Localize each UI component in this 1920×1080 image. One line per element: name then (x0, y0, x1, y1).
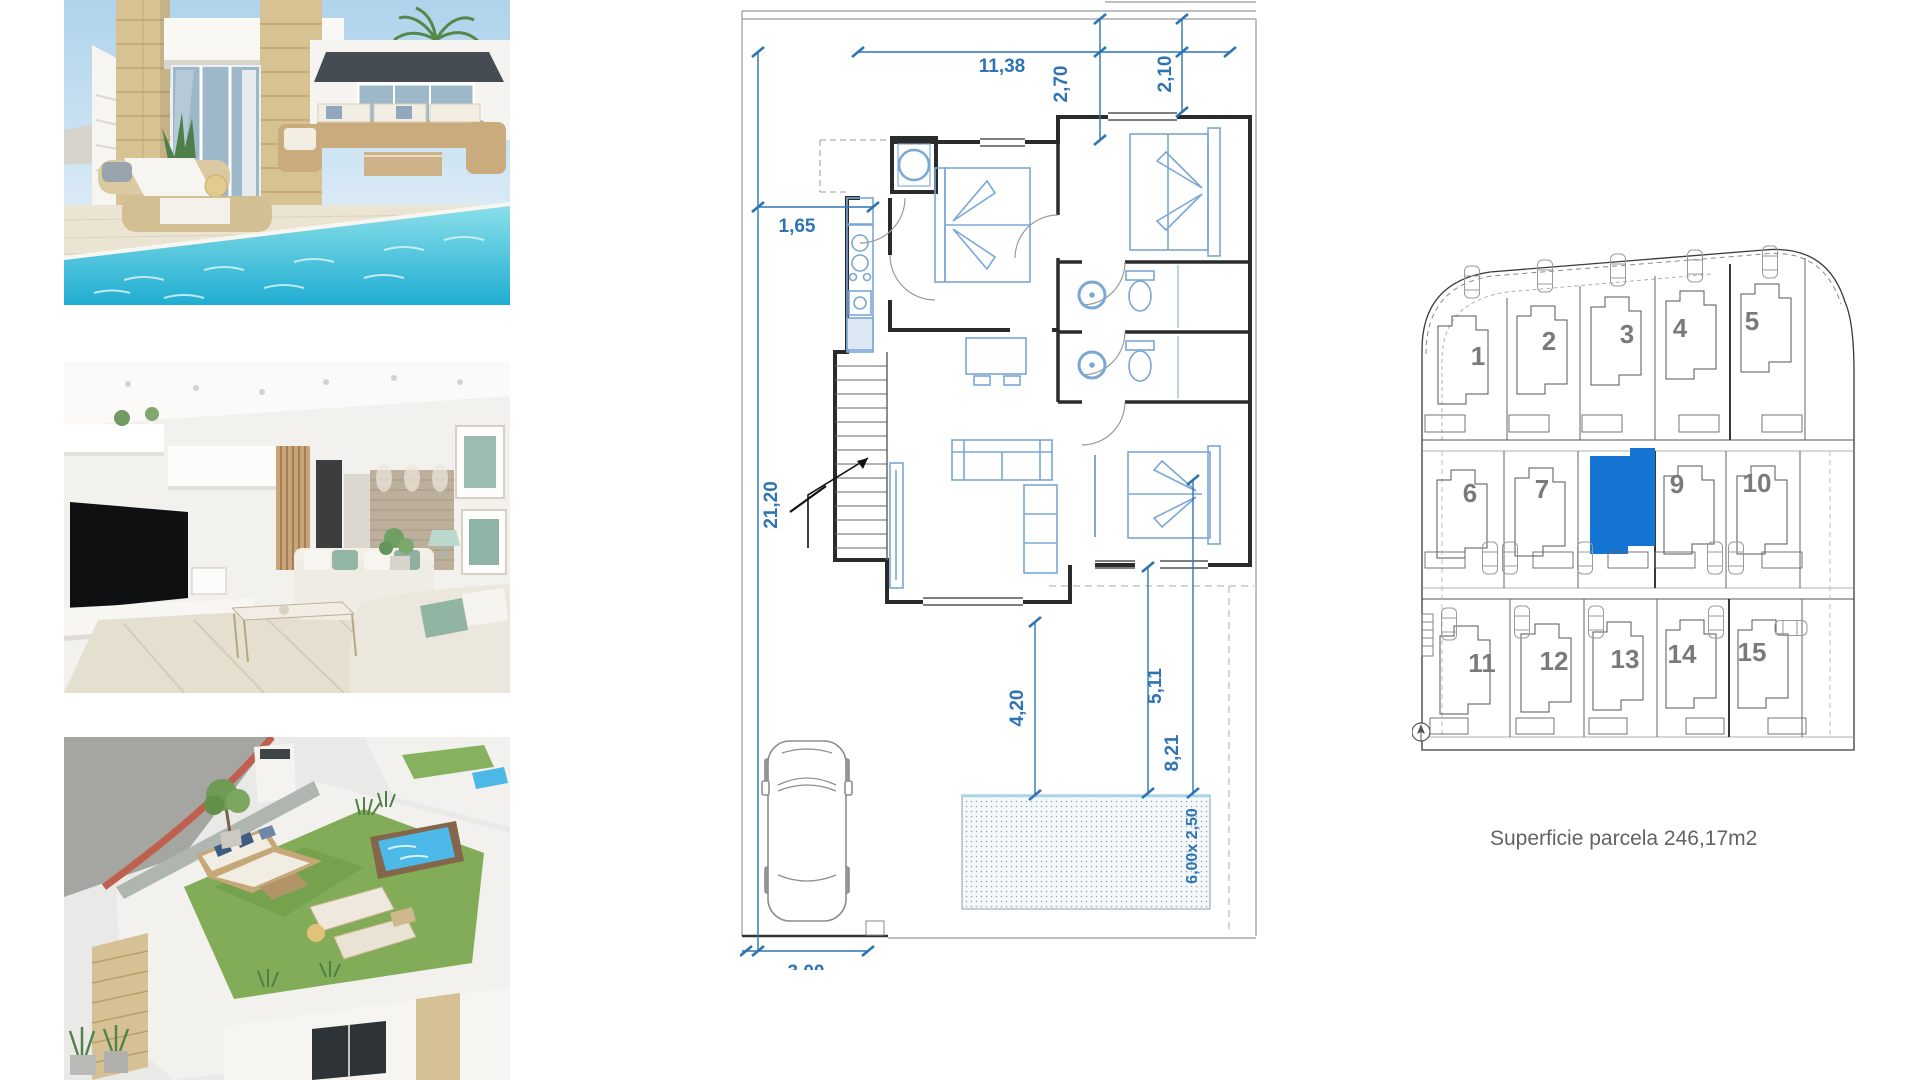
photo-living-room (64, 362, 510, 693)
dim-pool-size: 6,00x 2,50 (1184, 808, 1201, 884)
dim-pool-offset: 8,21 (1162, 734, 1183, 771)
art-1 (464, 436, 496, 488)
wall-glow-2 (404, 464, 420, 492)
parcel-14: 14 (1668, 639, 1697, 669)
roof-terrace-illustration (64, 737, 510, 1080)
parcel-7: 7 (1535, 474, 1549, 504)
plant-left-2 (145, 407, 159, 421)
living-room-illustration (64, 362, 510, 693)
gate-post (866, 921, 884, 935)
site-plan: 1 2 3 4 5 6 7 9 10 11 12 13 14 15 (1412, 240, 1862, 770)
white-pillow (462, 588, 508, 626)
porch-dashed (820, 140, 890, 192)
north-arrow-icon (1412, 723, 1430, 741)
chimney-top (260, 749, 290, 759)
wall-glow-1 (376, 464, 392, 492)
stone-pillar-right (416, 993, 460, 1080)
site-plan-drawing: 1 2 3 4 5 6 7 9 10 11 12 13 14 15 (1412, 240, 1862, 770)
art-2 (469, 519, 499, 565)
stair-treads (835, 366, 887, 548)
shelf-shadow (168, 486, 278, 490)
wall-cabinet (64, 424, 164, 454)
parcel-5: 5 (1745, 306, 1759, 336)
tv-screen (70, 502, 188, 610)
plant-left (114, 410, 130, 426)
parcel-12: 12 (1540, 646, 1569, 676)
parcel-1: 1 (1471, 341, 1485, 371)
dim-porch-depth: 2,70 (1051, 66, 1072, 103)
photo-villa-exterior (64, 0, 510, 305)
parcel-area-caption: Superficie parcela 246,17m2 (1490, 827, 1790, 851)
awning (314, 52, 504, 82)
parcel-4: 4 (1673, 313, 1688, 343)
cabinet-shadow (64, 452, 164, 456)
dim-entry-depth: 2,10 (1155, 56, 1176, 93)
parcel-9: 9 (1670, 469, 1684, 499)
ladder-icon (1422, 614, 1433, 656)
dim-drive-width: 3,00 (788, 962, 825, 970)
photo-frame (192, 568, 226, 594)
brochure-page: 11,38 2,70 2,10 1,65 21,20 3,00 4,20 5,1… (0, 0, 1920, 1080)
parcel-2: 2 (1542, 326, 1556, 356)
villa-exterior-illustration (64, 0, 510, 305)
dim-left-offset: 1,65 (779, 216, 816, 237)
floor-plan: 11,38 2,70 2,10 1,65 21,20 3,00 4,20 5,1… (740, 0, 1260, 970)
floor-plan-drawing: 11,38 2,70 2,10 1,65 21,20 3,00 4,20 5,1… (740, 0, 1260, 970)
furniture (847, 128, 1220, 588)
parcel-6: 6 (1463, 478, 1477, 508)
parcel-3: 3 (1620, 319, 1634, 349)
parcel-13: 13 (1611, 644, 1640, 674)
highlighted-parcel-8 (1590, 448, 1655, 554)
parcel-10: 10 (1743, 468, 1772, 498)
car-plan (762, 741, 852, 921)
wall-shelf (168, 446, 278, 488)
dim-garden-depth: 5,11 (1145, 668, 1166, 704)
wall-glow-3 (432, 464, 448, 492)
door-swings (860, 198, 1125, 445)
exterior-walls (835, 115, 1250, 602)
dim-top-width: 11,38 (979, 56, 1026, 77)
pool-plan (962, 795, 1210, 909)
parcel-15: 15 (1738, 637, 1767, 667)
curtain (242, 70, 256, 200)
dim-terrace-depth: 4,20 (1007, 690, 1028, 727)
dim-plot-depth: 21,20 (761, 481, 782, 529)
photo-roof-terrace (64, 737, 510, 1080)
parcel-11: 11 (1468, 648, 1496, 678)
